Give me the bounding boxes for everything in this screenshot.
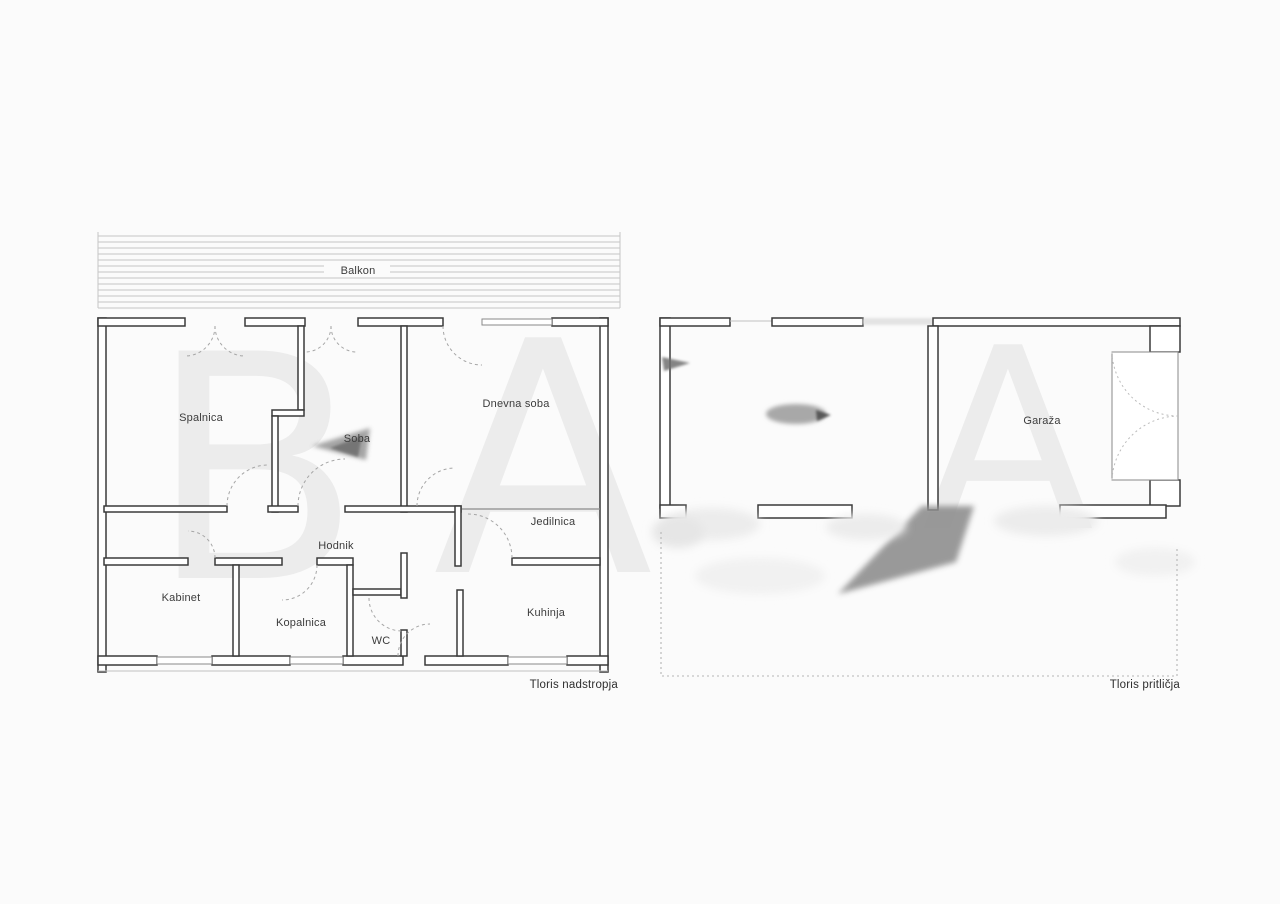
garage-door-frame: [1112, 352, 1178, 480]
wall-segment: [401, 326, 407, 512]
wall-segment: [272, 416, 278, 512]
door-arc: [369, 598, 402, 631]
wall-segment: [457, 590, 463, 656]
smudge-blob: [994, 506, 1098, 536]
wall-segment: [98, 656, 157, 665]
wall-segment: [758, 505, 852, 518]
floor-plan-sheet: B A A Balkon: [0, 0, 1280, 904]
wall-segment: [268, 506, 298, 512]
wall-segment: [358, 318, 443, 326]
wall-segment: [1150, 480, 1180, 506]
ground-walls: [660, 318, 1180, 518]
wall-segment: [215, 558, 282, 565]
smudge-blob: [652, 516, 704, 548]
window: [290, 657, 343, 664]
window: [157, 657, 212, 664]
wall-segment: [343, 656, 403, 665]
wall-segment: [345, 506, 461, 512]
room-label-jedilnica: Jedilnica: [531, 516, 576, 528]
wall-segment: [212, 656, 290, 665]
wall-segment: [104, 558, 188, 565]
floor-plan-drawing: B A A Balkon: [0, 0, 1280, 904]
smudge-blob: [695, 558, 825, 594]
wall-segment: [455, 506, 461, 566]
watermark: B A A: [148, 273, 1094, 652]
balcony-label: Balkon: [341, 265, 376, 277]
room-label-wc: WC: [372, 635, 391, 647]
wall-segment: [401, 553, 407, 598]
wall-segment: [104, 506, 227, 512]
wall-segment: [552, 318, 608, 326]
room-label-soba: Soba: [344, 433, 371, 445]
smudge-mark: [662, 357, 690, 371]
wall-segment: [233, 565, 239, 656]
wall-segment: [272, 410, 304, 416]
wall-segment: [600, 318, 608, 672]
room-label-dnevna-soba: Dnevna soba: [482, 398, 550, 410]
wall-segment: [317, 558, 353, 565]
wall-segment: [660, 318, 670, 508]
smudged-window: [863, 318, 933, 325]
watermark-letter-a-upper: A: [433, 273, 654, 648]
upper-plan-title: Tloris nadstropja: [530, 679, 619, 691]
wall-segment: [298, 326, 304, 410]
wall-segment: [245, 318, 305, 326]
room-label-spalnica: Spalnica: [179, 412, 223, 424]
room-label-kuhinja: Kuhinja: [527, 607, 566, 619]
wall-segment: [98, 318, 106, 672]
wall-segment: [928, 326, 938, 510]
wall-segment: [512, 558, 600, 565]
window: [508, 657, 567, 664]
wall-segment: [1150, 326, 1180, 352]
room-label-kabinet: Kabinet: [162, 592, 201, 604]
wall-segment: [567, 656, 608, 665]
wall-segment: [98, 318, 185, 326]
wall-segment: [353, 589, 401, 595]
window: [482, 319, 552, 325]
ground-room-labels: Garaža: [1023, 415, 1061, 427]
wall-segment: [772, 318, 863, 326]
room-label-hodnik: Hodnik: [318, 540, 354, 552]
wall-segment: [347, 565, 353, 656]
room-label-garaza: Garaža: [1023, 415, 1061, 427]
wall-segment: [425, 656, 508, 665]
ground-plan-title: Tloris pritličja: [1110, 679, 1181, 691]
wall-segment: [401, 630, 407, 656]
smudge-blob: [1115, 548, 1195, 576]
smudge-blob: [826, 514, 906, 540]
room-label-kopalnica: Kopalnica: [276, 617, 327, 629]
wall-segment: [660, 318, 730, 326]
wall-segment: [933, 318, 1180, 326]
